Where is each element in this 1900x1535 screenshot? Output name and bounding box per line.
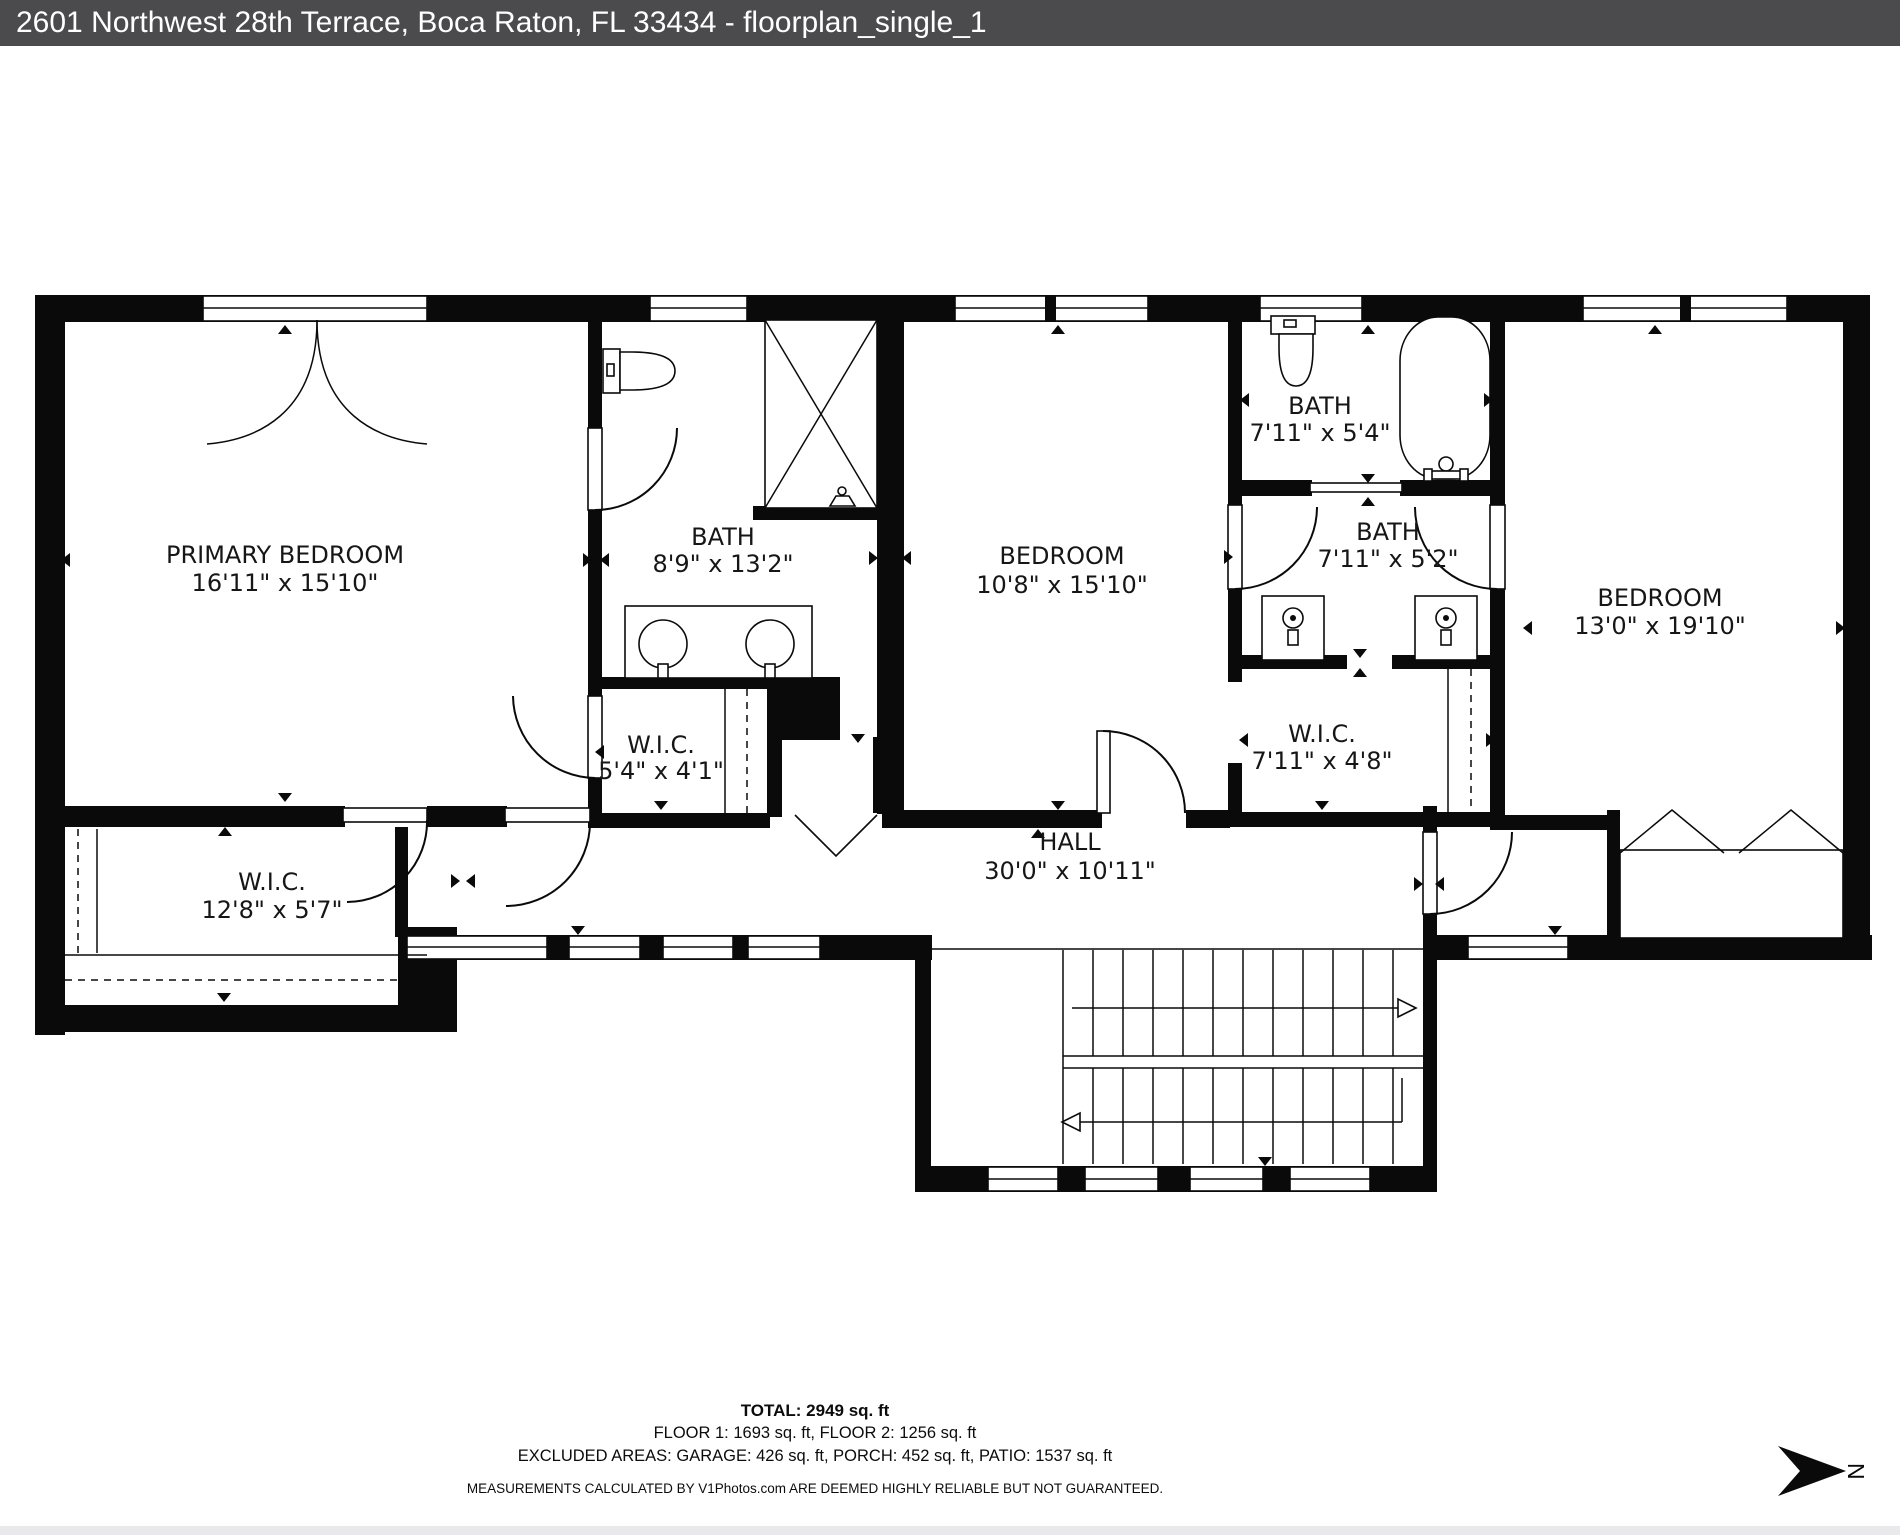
toilet-icon: [1271, 316, 1315, 386]
door: [1097, 731, 1185, 813]
door: [513, 696, 602, 778]
total-area: TOTAL: 2949 sq. ft: [315, 1399, 1315, 1422]
pocket-door: [1310, 483, 1402, 492]
window: [407, 936, 547, 959]
room-dims: 8'9" x 13'2": [652, 550, 793, 578]
stairs: [931, 949, 1423, 1164]
hall-niche: [795, 815, 877, 856]
disclaimer: MEASUREMENTS CALCULATED BY V1Photos.com …: [315, 1481, 1315, 1496]
room-label: BATH: [691, 523, 755, 551]
bottom-strip: [0, 1526, 1900, 1535]
dimension-markers: [48, 311, 1845, 1166]
north-arrow-icon: N: [1778, 1446, 1869, 1496]
window: [988, 1167, 1058, 1191]
stairs-down-arrow: [1062, 1113, 1080, 1131]
door: [588, 428, 677, 510]
walls: [35, 295, 1872, 1192]
shower-icon: [765, 320, 877, 508]
room-label: W.I.C.: [627, 731, 695, 759]
room-dims: 5'4" x 4'1": [598, 757, 724, 785]
room-dims: 13'0" x 19'10": [1574, 612, 1746, 640]
vanity-sink-icon: [1415, 596, 1477, 660]
room-dims: 12'8" x 5'7": [201, 896, 342, 924]
window: [748, 936, 820, 959]
room-label: W.I.C.: [238, 868, 306, 896]
window: [1190, 1167, 1263, 1191]
room-label: BATH: [1356, 518, 1420, 546]
door: [343, 808, 427, 902]
room-label: HALL: [1039, 828, 1101, 856]
room-dims: 7'11" x 5'2": [1317, 545, 1458, 573]
room-label: PRIMARY BEDROOM: [166, 541, 404, 569]
window: [955, 296, 1148, 321]
floorplan-drawing: PRIMARY BEDROOM 16'11" x 15'10" BATH 8'9…: [0, 0, 1900, 1535]
doors: [343, 428, 1512, 914]
room-dims: 7'11" x 5'4": [1249, 419, 1390, 447]
curtain-window-icon: [207, 320, 427, 444]
window: [1290, 1167, 1370, 1191]
windows: [203, 296, 1787, 1191]
window: [663, 936, 733, 959]
floor-areas: FLOOR 1: 1693 sq. ft, FLOOR 2: 1256 sq. …: [315, 1422, 1315, 1445]
double-vanity-icon: [625, 606, 812, 678]
vanity-sink-icon: [1262, 596, 1324, 660]
door: [505, 808, 590, 906]
window: [1085, 1167, 1158, 1191]
bifold-closet-icon: [1620, 810, 1843, 938]
room-dims: 16'11" x 15'10": [192, 569, 379, 597]
window: [1583, 296, 1787, 321]
window: [1468, 936, 1568, 959]
room-label: BEDROOM: [999, 542, 1124, 570]
room-label: BATH: [1288, 392, 1352, 420]
area-summary: TOTAL: 2949 sq. ft FLOOR 1: 1693 sq. ft,…: [315, 1399, 1315, 1496]
window: [569, 936, 640, 959]
room-label: BEDROOM: [1597, 584, 1722, 612]
north-label: N: [1843, 1463, 1869, 1480]
door: [1228, 505, 1317, 589]
room-dims: 7'11" x 4'8": [1251, 747, 1392, 775]
door: [1423, 832, 1512, 914]
floorplan-viewer: 2601 Northwest 28th Terrace, Boca Raton,…: [0, 0, 1900, 1535]
bathtub-icon: [1400, 317, 1490, 481]
room-dims: 10'8" x 15'10": [976, 571, 1148, 599]
toilet-icon: [603, 349, 675, 393]
room-dims: 30'0" x 10'11": [984, 857, 1156, 885]
excluded-areas: EXCLUDED AREAS: GARAGE: 426 sq. ft, PORC…: [315, 1445, 1315, 1468]
window: [203, 296, 427, 321]
room-label: W.I.C.: [1288, 720, 1356, 748]
window: [650, 296, 747, 321]
stairs-up-arrow: [1398, 999, 1416, 1017]
